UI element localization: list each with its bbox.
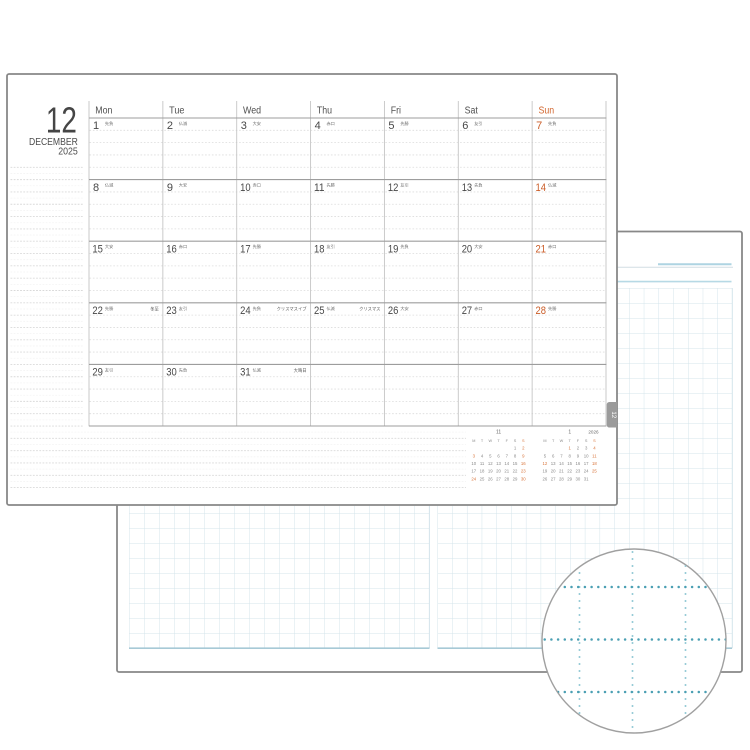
svg-text:5: 5 [388, 120, 394, 132]
svg-text:29: 29 [513, 476, 518, 481]
svg-text:冬至: 冬至 [150, 305, 159, 312]
svg-text:先負: 先負 [474, 182, 482, 189]
svg-text:12: 12 [46, 99, 77, 140]
svg-text:Thu: Thu [317, 105, 332, 116]
svg-text:15: 15 [567, 461, 572, 466]
svg-text:先勝: 先勝 [253, 243, 262, 250]
svg-text:24: 24 [240, 305, 251, 317]
svg-text:大安: 大安 [474, 243, 482, 250]
svg-text:16: 16 [576, 461, 581, 466]
svg-text:11: 11 [592, 453, 597, 458]
svg-text:M: M [543, 439, 546, 443]
svg-text:15: 15 [513, 461, 518, 466]
svg-text:17: 17 [471, 469, 476, 474]
svg-text:仏滅: 仏滅 [179, 120, 188, 127]
svg-text:19: 19 [388, 243, 399, 255]
svg-text:先負: 先負 [179, 366, 187, 373]
svg-text:先勝: 先勝 [326, 182, 335, 189]
svg-text:赤口: 赤口 [474, 306, 482, 311]
svg-text:13: 13 [551, 461, 556, 466]
svg-text:赤口: 赤口 [548, 244, 556, 249]
svg-text:22: 22 [513, 469, 518, 474]
svg-text:13: 13 [496, 461, 501, 466]
svg-text:3: 3 [241, 120, 247, 132]
svg-text:赤口: 赤口 [326, 121, 334, 126]
svg-text:大晦日: 大晦日 [294, 367, 307, 374]
svg-text:12: 12 [610, 411, 617, 418]
svg-text:22: 22 [567, 469, 572, 474]
svg-text:12: 12 [488, 461, 493, 466]
svg-text:20: 20 [462, 243, 473, 255]
svg-text:Sun: Sun [538, 105, 554, 116]
svg-text:赤口: 赤口 [253, 183, 261, 188]
svg-text:友引: 友引 [105, 366, 113, 373]
svg-text:29: 29 [567, 476, 572, 481]
svg-text:9: 9 [167, 182, 173, 194]
svg-text:22: 22 [92, 305, 103, 317]
svg-text:クリスマスイブ: クリスマスイブ [277, 305, 308, 312]
svg-text:11: 11 [314, 182, 325, 194]
svg-text:10: 10 [471, 461, 476, 466]
svg-text:24: 24 [584, 469, 589, 474]
svg-text:W: W [489, 439, 493, 443]
svg-text:Mon: Mon [95, 105, 112, 116]
svg-text:1: 1 [93, 120, 99, 132]
svg-text:Tue: Tue [169, 105, 185, 116]
svg-text:7: 7 [536, 120, 542, 132]
svg-text:11: 11 [496, 429, 501, 435]
svg-text:17: 17 [240, 243, 251, 255]
svg-text:28: 28 [504, 476, 509, 481]
svg-text:Sat: Sat [465, 105, 478, 116]
svg-text:30: 30 [521, 476, 526, 481]
svg-text:仏滅: 仏滅 [548, 182, 557, 189]
svg-text:先負: 先負 [105, 120, 113, 127]
svg-text:31: 31 [240, 367, 251, 379]
svg-text:20: 20 [496, 469, 501, 474]
svg-text:8: 8 [93, 182, 99, 194]
svg-text:友引: 友引 [400, 182, 408, 189]
svg-text:1: 1 [568, 429, 571, 435]
svg-text:S: S [593, 439, 596, 443]
svg-text:先勝: 先勝 [548, 305, 557, 312]
svg-text:先勝: 先勝 [400, 120, 409, 127]
svg-text:23: 23 [521, 469, 526, 474]
svg-text:15: 15 [92, 243, 103, 255]
svg-text:2025: 2025 [58, 147, 78, 158]
svg-text:18: 18 [592, 461, 597, 466]
svg-text:13: 13 [462, 182, 473, 194]
svg-text:大安: 大安 [253, 120, 261, 127]
svg-text:20: 20 [551, 469, 556, 474]
svg-text:大安: 大安 [179, 182, 187, 189]
svg-text:26: 26 [388, 305, 399, 317]
svg-text:先負: 先負 [253, 305, 261, 312]
svg-text:12: 12 [388, 182, 399, 194]
svg-text:S: S [522, 439, 525, 443]
svg-text:31: 31 [584, 476, 589, 481]
svg-text:Fri: Fri [391, 105, 401, 116]
svg-text:S: S [585, 439, 588, 443]
svg-text:16: 16 [166, 243, 177, 255]
svg-text:2026: 2026 [588, 429, 599, 434]
svg-text:仏滅: 仏滅 [105, 182, 114, 189]
svg-text:21: 21 [504, 469, 509, 474]
svg-text:先負: 先負 [400, 243, 408, 250]
svg-text:30: 30 [576, 476, 581, 481]
svg-text:25: 25 [592, 469, 597, 474]
svg-text:16: 16 [521, 461, 526, 466]
svg-text:4: 4 [315, 120, 321, 132]
svg-text:21: 21 [536, 243, 547, 255]
svg-text:29: 29 [92, 367, 103, 379]
svg-text:大安: 大安 [400, 305, 408, 312]
svg-text:Wed: Wed [243, 105, 261, 116]
svg-text:21: 21 [559, 469, 564, 474]
svg-text:27: 27 [462, 305, 473, 317]
svg-text:28: 28 [559, 476, 564, 481]
svg-text:24: 24 [471, 476, 476, 481]
svg-text:大安: 大安 [105, 243, 113, 250]
svg-text:6: 6 [462, 120, 468, 132]
svg-text:仏滅: 仏滅 [253, 366, 262, 373]
svg-text:23: 23 [166, 305, 177, 317]
svg-text:友引: 友引 [326, 243, 334, 250]
svg-text:10: 10 [584, 453, 589, 458]
svg-text:27: 27 [551, 476, 556, 481]
svg-text:先勝: 先勝 [105, 305, 114, 312]
svg-text:19: 19 [543, 469, 548, 474]
svg-text:2: 2 [167, 120, 173, 132]
svg-text:赤口: 赤口 [179, 244, 187, 249]
svg-text:14: 14 [559, 461, 564, 466]
svg-text:仏滅: 仏滅 [326, 305, 335, 312]
svg-text:25: 25 [314, 305, 325, 317]
svg-text:先負: 先負 [548, 120, 556, 127]
svg-text:28: 28 [536, 305, 547, 317]
svg-text:25: 25 [480, 476, 485, 481]
svg-text:18: 18 [480, 469, 485, 474]
svg-text:30: 30 [166, 367, 177, 379]
svg-text:14: 14 [504, 461, 509, 466]
svg-text:23: 23 [576, 469, 581, 474]
svg-text:19: 19 [488, 469, 493, 474]
svg-text:14: 14 [536, 182, 547, 194]
svg-text:12: 12 [543, 461, 548, 466]
svg-text:26: 26 [488, 476, 493, 481]
svg-text:11: 11 [480, 461, 485, 466]
svg-text:26: 26 [543, 476, 548, 481]
svg-text:友引: 友引 [179, 305, 187, 312]
svg-text:18: 18 [314, 243, 325, 255]
svg-text:S: S [514, 439, 517, 443]
svg-text:17: 17 [584, 461, 589, 466]
svg-text:27: 27 [496, 476, 501, 481]
svg-text:友引: 友引 [474, 120, 482, 127]
svg-text:10: 10 [240, 182, 251, 194]
svg-text:W: W [560, 439, 564, 443]
svg-text:M: M [472, 439, 475, 443]
